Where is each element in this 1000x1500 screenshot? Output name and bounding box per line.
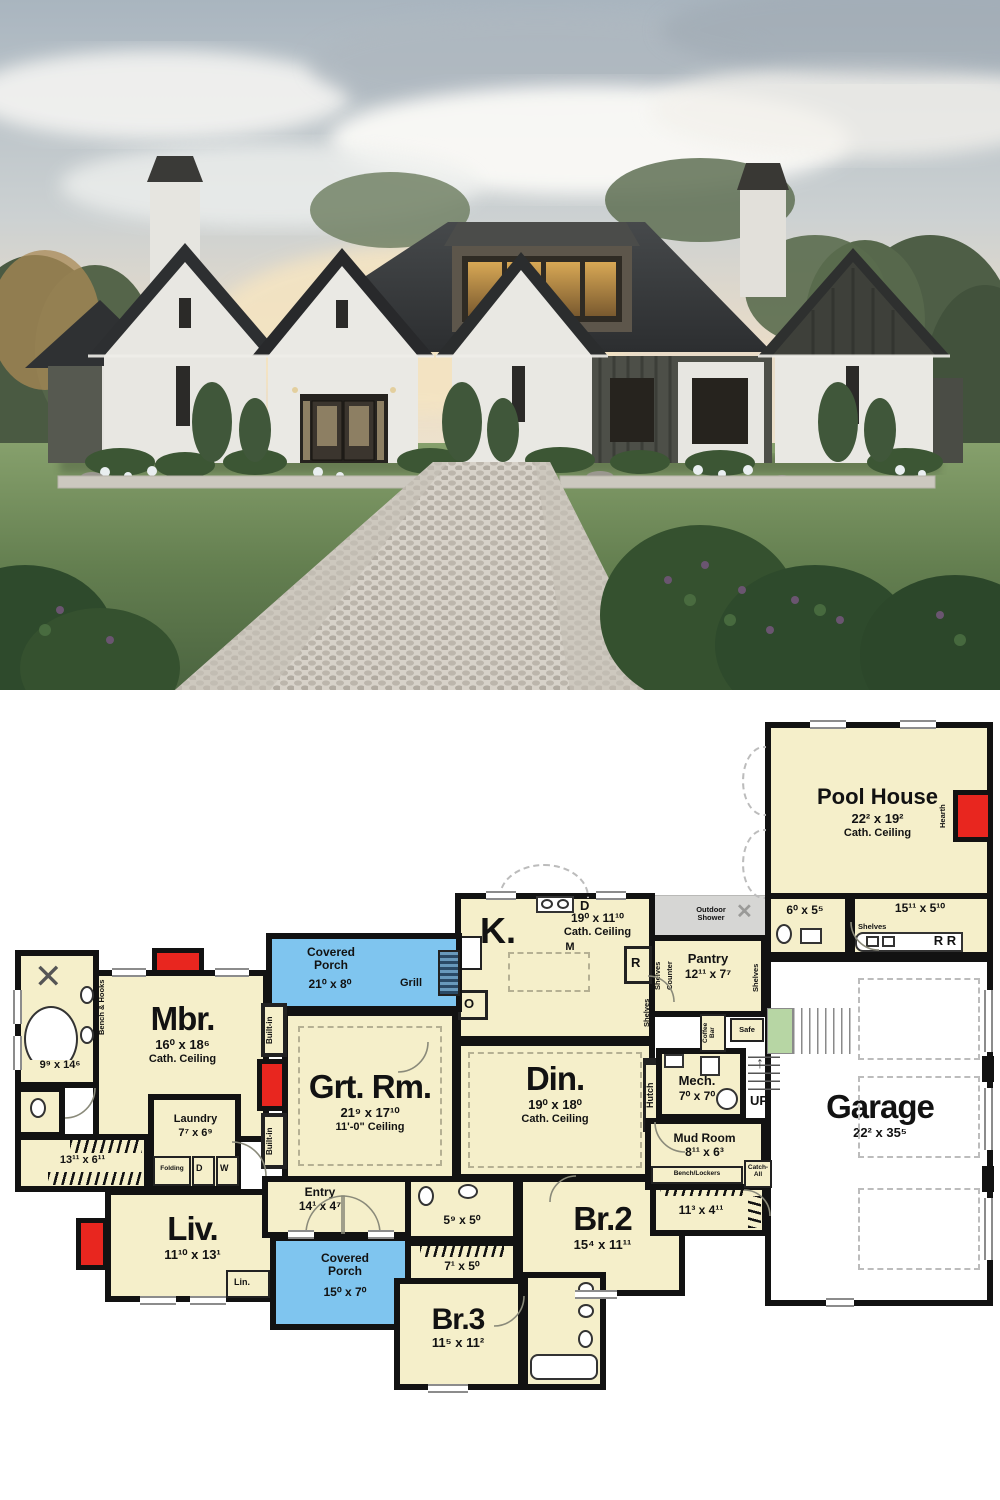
- kitchen-island: [508, 952, 590, 992]
- chimney-right: [740, 182, 786, 297]
- closet-rod: [70, 1140, 142, 1153]
- mud-dims: 8¹¹ x 6³: [652, 1146, 757, 1159]
- pantry-shelves-left: Shelves: [654, 946, 662, 1006]
- pool-bath-dims: 6⁰ x 5⁵: [770, 904, 840, 917]
- great-ceiling: 11'-0" Ceiling: [288, 1122, 452, 1134]
- pantry-shelves-right: Shelves: [752, 948, 760, 1008]
- stairs-up-arrow: ↑: [756, 1056, 764, 1073]
- kitchen-name: K.: [480, 912, 516, 950]
- page: Outdoor Shower ✕ Pool House 22² x 19² Ca…: [0, 0, 1000, 1500]
- coffee-bar-label: Coffee Bar: [703, 1017, 723, 1049]
- pantry-name: Pantry: [668, 952, 748, 966]
- kitchen-dims: 19⁰ x 11¹⁰: [545, 912, 650, 925]
- floor-plan: Outdoor Shower ✕ Pool House 22² x 19² Ca…: [0, 690, 1000, 1500]
- garage-bay: [858, 1076, 980, 1158]
- br3-window: [428, 1384, 468, 1393]
- entry-sidelite: [288, 1230, 314, 1239]
- hearth-label: Hearth: [939, 794, 947, 838]
- garage-side-door: [826, 1298, 854, 1307]
- safe-label: Safe: [733, 1026, 761, 1034]
- sink-icon: [80, 986, 94, 1004]
- bench-lockers-label: Bench/Lockers: [653, 1171, 741, 1178]
- laundry-dims: 7⁷ x 6⁹: [158, 1128, 233, 1140]
- porch-top-dims: 21⁰ x 8⁰: [290, 978, 370, 991]
- pool-dashed-opening: [742, 742, 766, 822]
- toilet-icon: [578, 1330, 593, 1348]
- living-name: Liv.: [125, 1212, 260, 1247]
- mbath-window: [13, 990, 22, 1024]
- grill-label: Grill: [400, 978, 422, 990]
- hall-closet-dims: 7¹ x 5⁰: [420, 1260, 504, 1273]
- lantern-left: [292, 387, 298, 393]
- lantern-right: [390, 387, 396, 393]
- sink-icon: [80, 1026, 94, 1044]
- mbr-window: [215, 968, 249, 977]
- living-dims: 11¹⁰ x 13¹: [125, 1248, 260, 1262]
- window-connector2: [692, 378, 748, 444]
- living-window: [140, 1296, 176, 1305]
- outdoor-shower-icon: ✕: [736, 902, 753, 923]
- kitchen-oven: O: [464, 997, 474, 1011]
- sidelite-right: [377, 401, 384, 460]
- sink-icon: [866, 936, 879, 947]
- garage-bay: [858, 1188, 980, 1270]
- living-window: [190, 1296, 226, 1305]
- br3-dims: 11⁵ x 11²: [398, 1336, 518, 1350]
- garden-wall-right: [560, 476, 935, 488]
- toilet-icon: [418, 1186, 434, 1206]
- shower-icon: ✕: [34, 960, 63, 996]
- laundry-name: Laundry: [158, 1114, 233, 1126]
- kitchen-shelves: Shelves: [643, 990, 651, 1036]
- closet-rod: [48, 1172, 142, 1185]
- window-left-slit: [176, 366, 190, 426]
- entry-sidelite: [368, 1230, 394, 1239]
- pool-hall-fridges: R R: [915, 934, 975, 948]
- entry-vent: [336, 300, 348, 328]
- linen-label: Lin.: [234, 1278, 250, 1287]
- built-in-top: Built-in: [266, 1008, 274, 1052]
- stairs-up-treads: [748, 1050, 780, 1090]
- water-heater-icon: [700, 1056, 720, 1076]
- hutch-label: Hutch: [646, 1065, 655, 1125]
- br3-name: Br.3: [398, 1304, 518, 1336]
- toilet-icon: [30, 1098, 46, 1118]
- porch-bottom-name: Covered Porch: [310, 1252, 380, 1277]
- great-fireplace: [257, 1059, 287, 1111]
- toilet-icon: [776, 924, 792, 944]
- kitchen-window: [596, 891, 626, 900]
- liv-fireplace: [76, 1218, 108, 1270]
- grill-icon: [438, 950, 460, 996]
- mud-name: Mud Room: [652, 1132, 757, 1145]
- water-heater-icon: [716, 1088, 738, 1110]
- built-in-bottom: Built-in: [266, 1119, 274, 1163]
- hall-bath-dims: 5⁹ x 5⁰: [420, 1214, 504, 1227]
- mbr-dims: 16⁰ x 18⁶: [115, 1038, 250, 1052]
- closet-rod: [748, 1196, 761, 1228]
- pool-house-fireplace: [953, 790, 993, 842]
- mech-sink: [664, 1054, 684, 1068]
- washer-label: W: [220, 1164, 229, 1173]
- kitchen-ceiling: Cath. Ceiling: [545, 927, 650, 939]
- sink-icon: [800, 928, 822, 944]
- dining-dims: 19⁰ x 18⁰: [490, 1098, 620, 1112]
- master-bath-dims: 9⁹ x 14⁶: [28, 1060, 92, 1072]
- garden-wall-left: [58, 476, 418, 488]
- chimney-right-cap: [737, 163, 789, 190]
- mbr-ceiling: Cath. Ceiling: [115, 1054, 250, 1066]
- covered-porch-top: [266, 933, 462, 1012]
- sink-icon: [578, 1304, 594, 1318]
- garage-bay: [858, 978, 980, 1060]
- closet-rod: [420, 1244, 504, 1257]
- exterior-photo: [0, 0, 1000, 690]
- br2-window: [575, 1290, 617, 1299]
- dining-name: Din.: [490, 1062, 620, 1097]
- sink-bowl: [557, 899, 569, 909]
- catch-all-label: Catch-All: [745, 1165, 771, 1179]
- pool-dashed-opening: [742, 825, 766, 905]
- pool-hall-dims: 15¹¹ x 5¹⁰: [870, 902, 970, 915]
- mbath-window: [13, 1036, 22, 1070]
- sink-icon: [882, 936, 895, 947]
- mech-name: Mech.: [662, 1074, 732, 1088]
- porch-top-name: Covered Porch: [296, 946, 366, 971]
- garage-jamb: [982, 1056, 994, 1082]
- garage-door: [984, 1198, 993, 1260]
- great-dims: 21⁹ x 17¹⁰: [288, 1106, 452, 1120]
- mbr-name: Mbr.: [115, 1002, 250, 1037]
- kitchen-fridge: R: [631, 956, 640, 970]
- stairs-up-label: UP: [750, 1094, 768, 1108]
- mbr-window: [112, 968, 146, 977]
- dormer-roof: [444, 222, 640, 246]
- pool-hall-shelves: Shelves: [858, 923, 886, 931]
- entry-name: Entry: [275, 1186, 365, 1199]
- pantry-dims: 12¹¹ x 7⁷: [668, 968, 748, 981]
- kitchen-dishwasher: D: [580, 899, 589, 913]
- garage-jamb: [982, 1166, 994, 1192]
- dryer-label: D: [196, 1164, 203, 1173]
- br2-dims: 15⁴ x 11¹¹: [535, 1238, 670, 1252]
- dining-ceiling: Cath. Ceiling: [490, 1114, 620, 1126]
- master-closet-dims: 13¹¹ x 6¹¹: [25, 1155, 140, 1167]
- window-connector: [610, 378, 654, 442]
- sink-icon: [458, 1184, 478, 1199]
- folding-label: Folding: [155, 1166, 189, 1173]
- wall-right-edge-dark: [933, 378, 963, 463]
- garage-door: [984, 990, 993, 1052]
- mbr-bench-hooks: Bench & Hooks: [98, 978, 116, 1036]
- porch-bottom-dims: 15⁰ x 7⁰: [305, 1286, 385, 1299]
- stairs-treads: [793, 1008, 857, 1054]
- sidelite-left: [303, 401, 310, 460]
- kitchen-window: [486, 891, 516, 900]
- entry-dims: 14¹ x 4⁷: [275, 1200, 365, 1213]
- sink-bowl: [541, 899, 553, 909]
- tub-icon: [530, 1354, 598, 1380]
- pool-house-window: [810, 720, 846, 729]
- pantry-counter: Counter: [666, 946, 674, 1006]
- great-name: Grt. Rm.: [288, 1070, 452, 1105]
- garage-door: [984, 1088, 993, 1150]
- outdoor-shower-label: Outdoor Shower: [688, 906, 734, 922]
- br2-closet-dims: 11³ x 4¹¹: [656, 1204, 746, 1217]
- vent-left: [179, 298, 191, 328]
- stairs-breezeway: [767, 1008, 793, 1054]
- pool-house-window: [900, 720, 936, 729]
